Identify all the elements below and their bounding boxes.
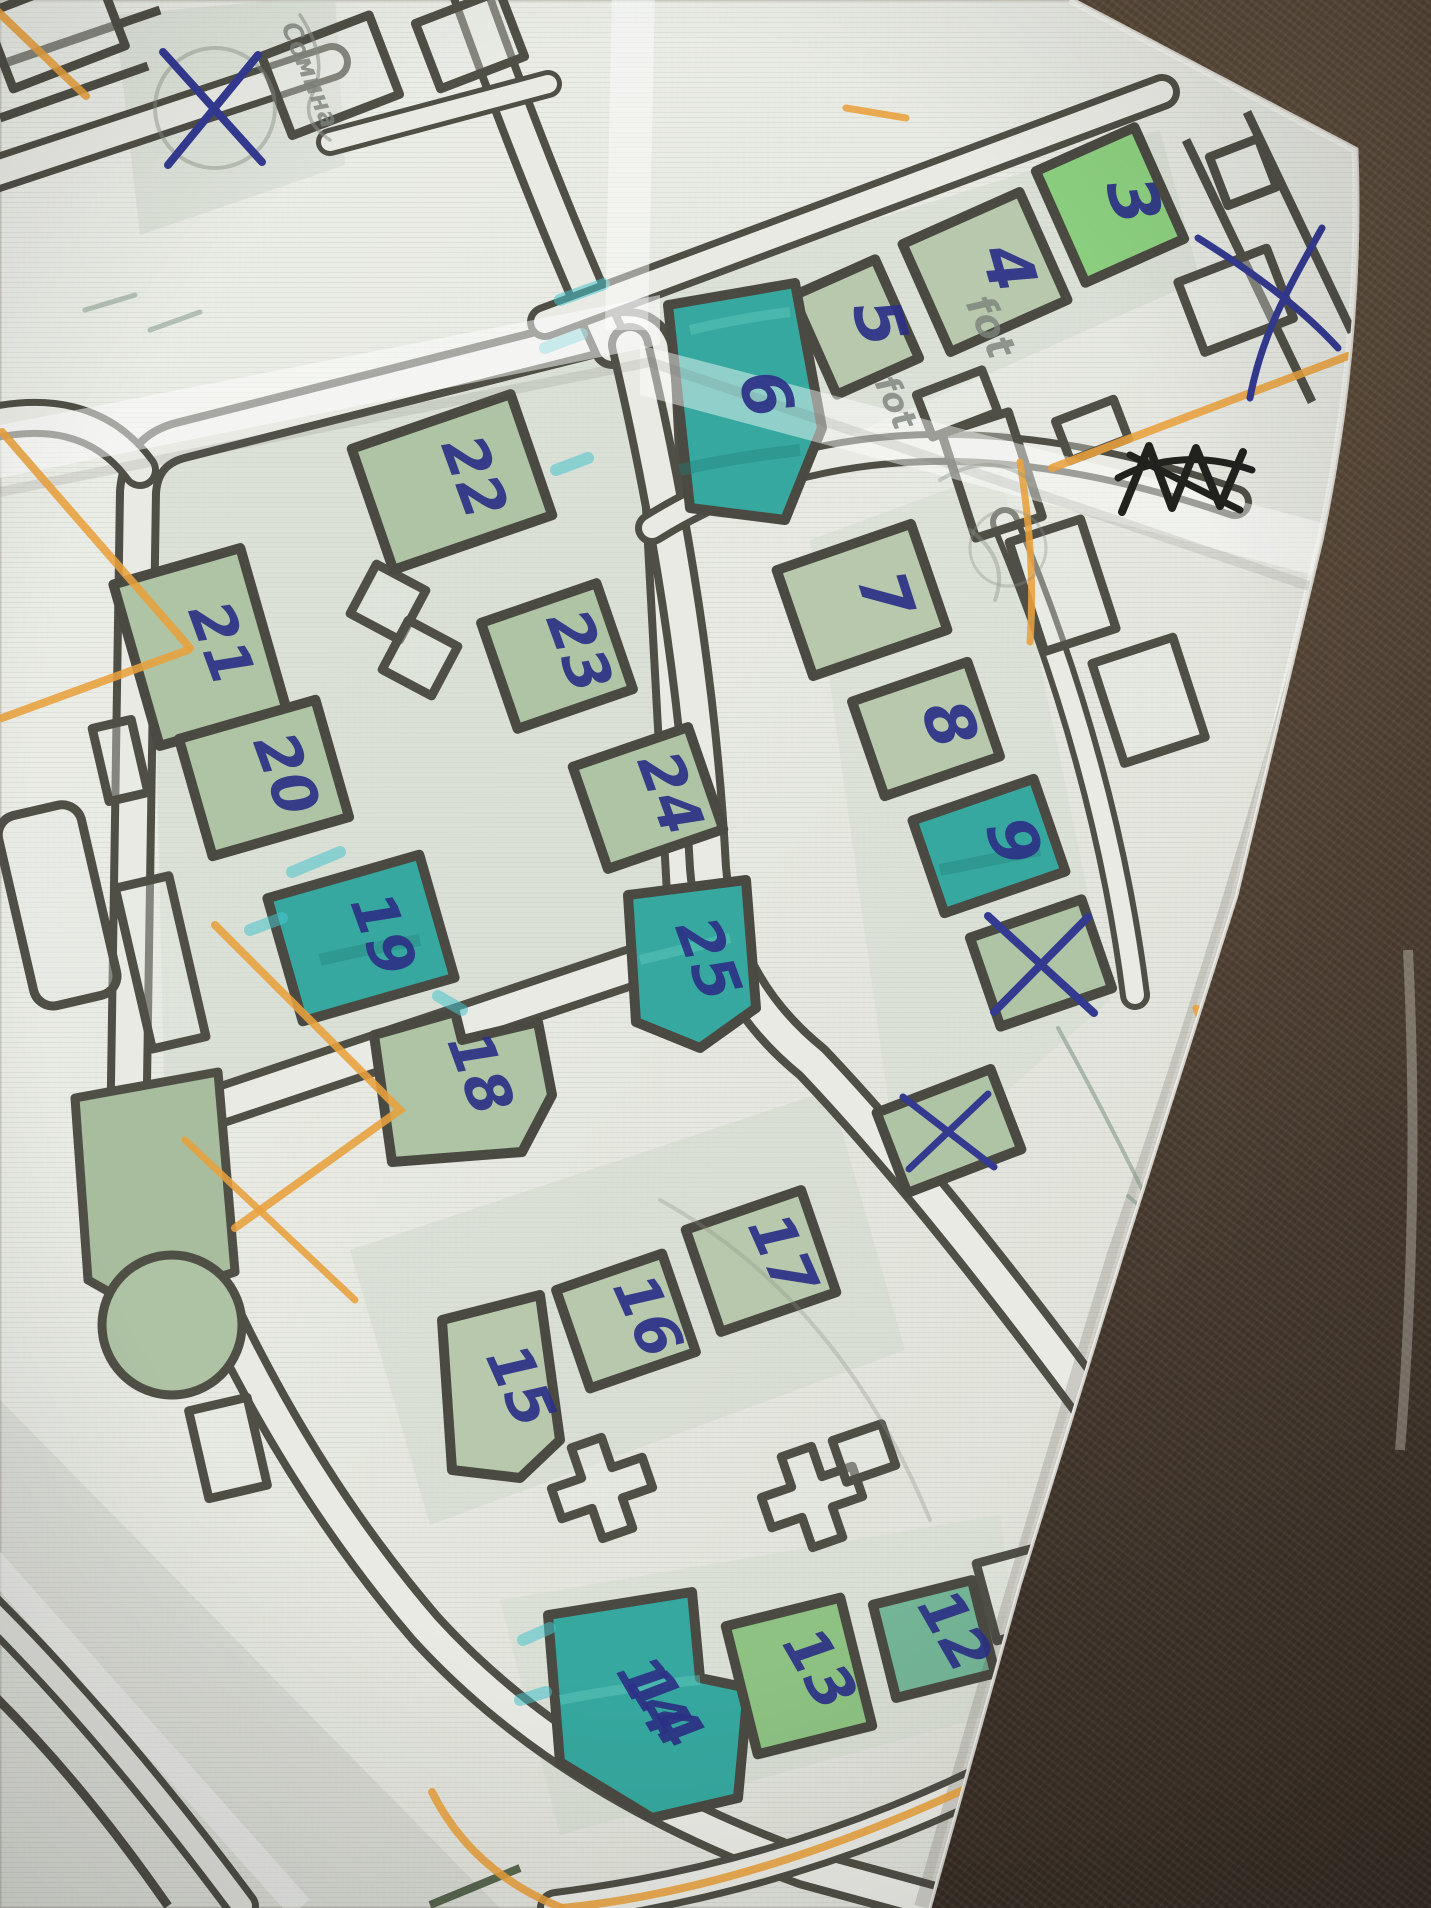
leather-highlight [1400,950,1413,1450]
crease-band-vertical [605,0,655,330]
green-pencil-squiggle [1243,1480,1250,1560]
pencil-note-500: то 500 [1222,1301,1287,1461]
map-photo: 3 4 5 6 7 8 9 21 22 23 20 24 19 25 18 17… [0,0,1431,1908]
park-circle [102,1255,242,1395]
photo-scene: 3 4 5 6 7 8 9 21 22 23 20 24 19 25 18 17… [0,0,1431,1908]
orange-bottom-line-2 [980,1690,1340,1860]
outline-plot [1209,138,1276,205]
orange-line [1196,1008,1252,1162]
